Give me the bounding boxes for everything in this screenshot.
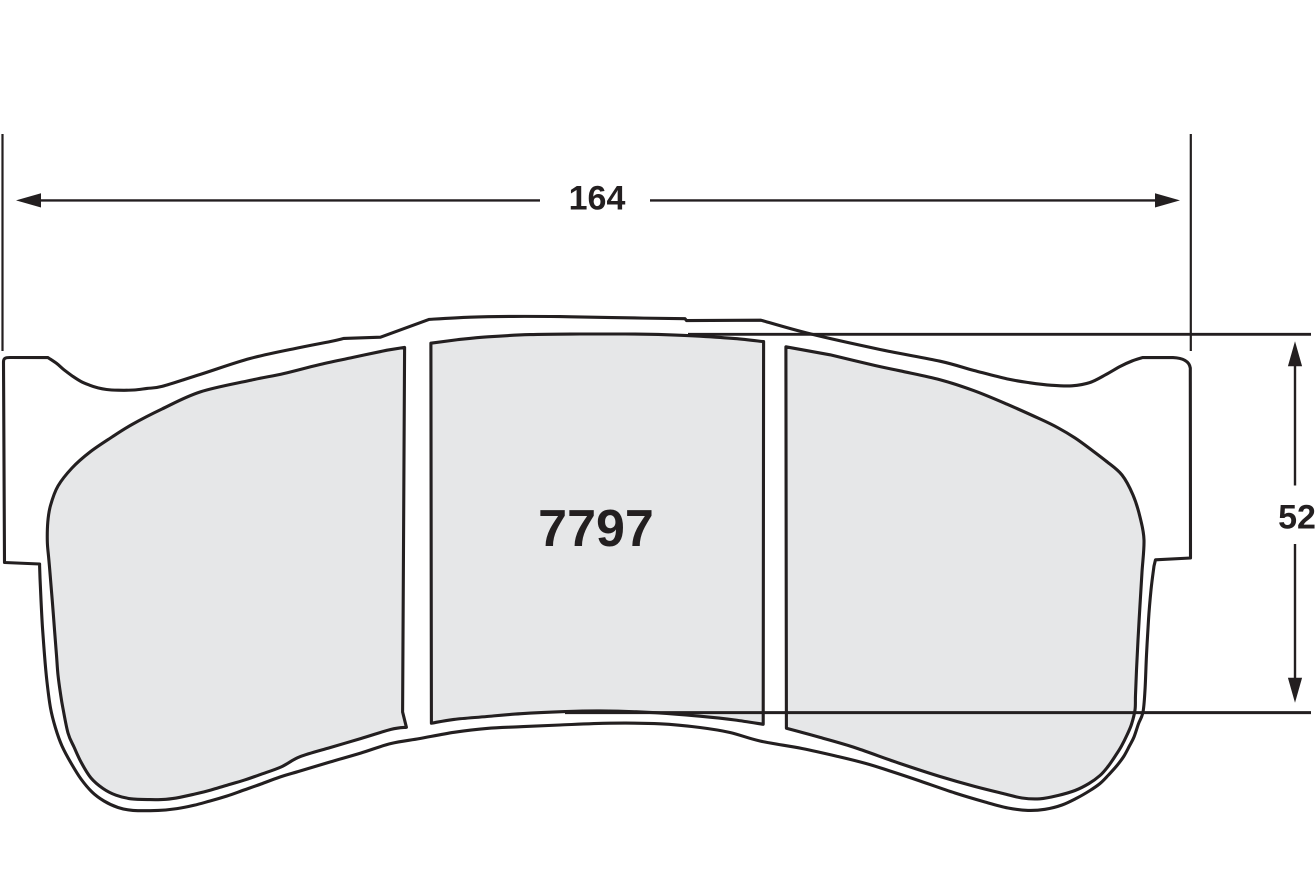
svg-text:7797: 7797 — [538, 500, 654, 558]
svg-text:52: 52 — [1278, 499, 1316, 537]
svg-text:164: 164 — [569, 179, 626, 217]
